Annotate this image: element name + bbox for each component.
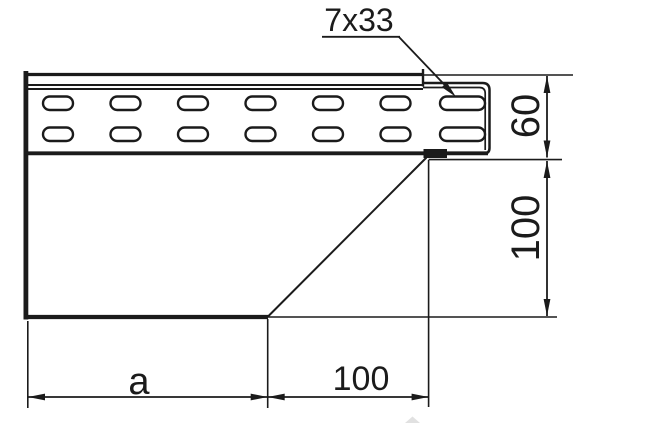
arrowhead-right [412,394,429,401]
slot-size-label: 7x33 [324,2,393,38]
slot-hole [178,128,208,142]
slot-hole [111,128,141,142]
slot-hole [43,97,73,111]
connector-outer-outline [423,83,490,154]
weld-seam-mark [424,149,448,158]
slot-hole [246,128,276,142]
rail-height-dim-label: 60 [504,94,548,139]
arrowhead-up [544,76,551,93]
side-drop-dim-label: 100 [504,195,548,262]
slot-hole [381,97,411,111]
slot-hole [313,97,343,111]
slot-hole [178,97,208,111]
cable-tray-reducer-technical-drawing: 7x33 60 100 a 100 [0,0,665,426]
body-diagonal-edge [268,158,427,317]
slot-row-bottom [43,128,485,142]
slot-row-top [43,97,485,111]
slot-hole-wide [440,128,485,142]
rail-left-cut-edge [24,71,29,320]
width-a-dim-label: a [128,361,150,403]
drawing-canvas: 7x33 60 100 a 100 [0,0,665,426]
dimension-lines [28,76,550,400]
extension-lines [28,75,573,408]
slot-hole [246,97,276,111]
arrowhead-left [268,394,285,401]
perforated-side-rail [24,69,490,320]
arrowhead-up [544,161,551,178]
arrowhead-down [544,299,551,316]
slot-hole-wide [440,97,485,111]
slot-hole [111,97,141,111]
arrowhead-left [28,394,45,401]
arrowhead-right [251,394,268,401]
arrowhead-down [544,141,551,158]
watermark-smudge [405,417,420,424]
slot-hole [381,128,411,142]
slot-hole [43,128,73,142]
slot-hole [313,128,343,142]
width-100-dim-label: 100 [333,360,390,398]
body-outline [25,158,427,318]
